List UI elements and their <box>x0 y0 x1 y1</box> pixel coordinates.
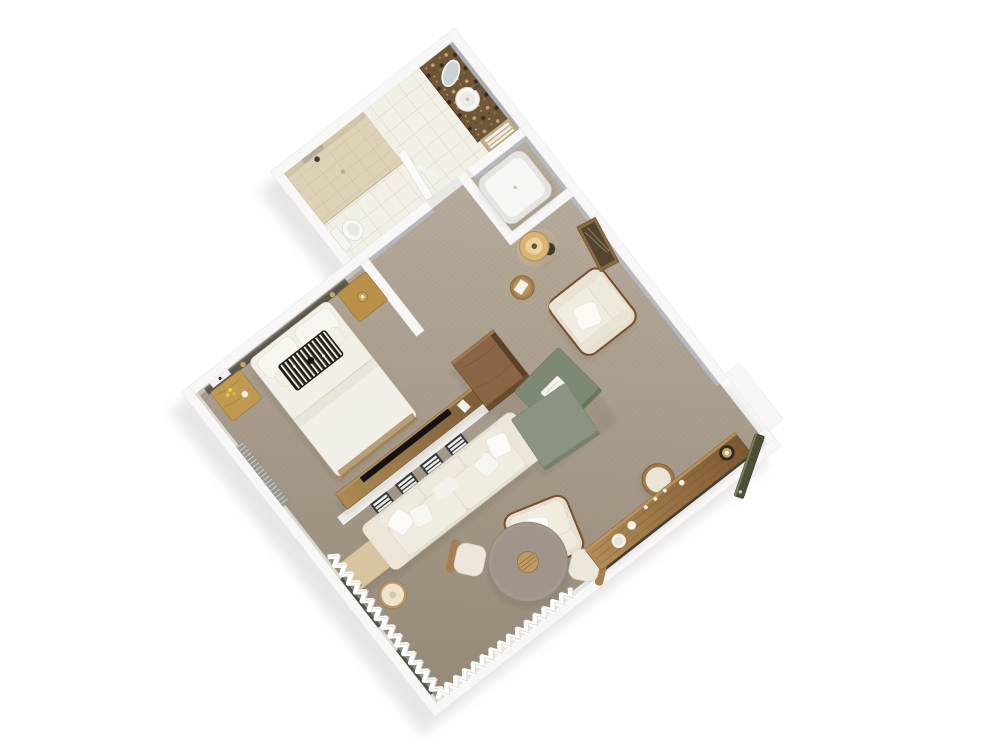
floorplan-canvas <box>0 0 1000 750</box>
floorplan-render-page <box>0 0 1000 750</box>
